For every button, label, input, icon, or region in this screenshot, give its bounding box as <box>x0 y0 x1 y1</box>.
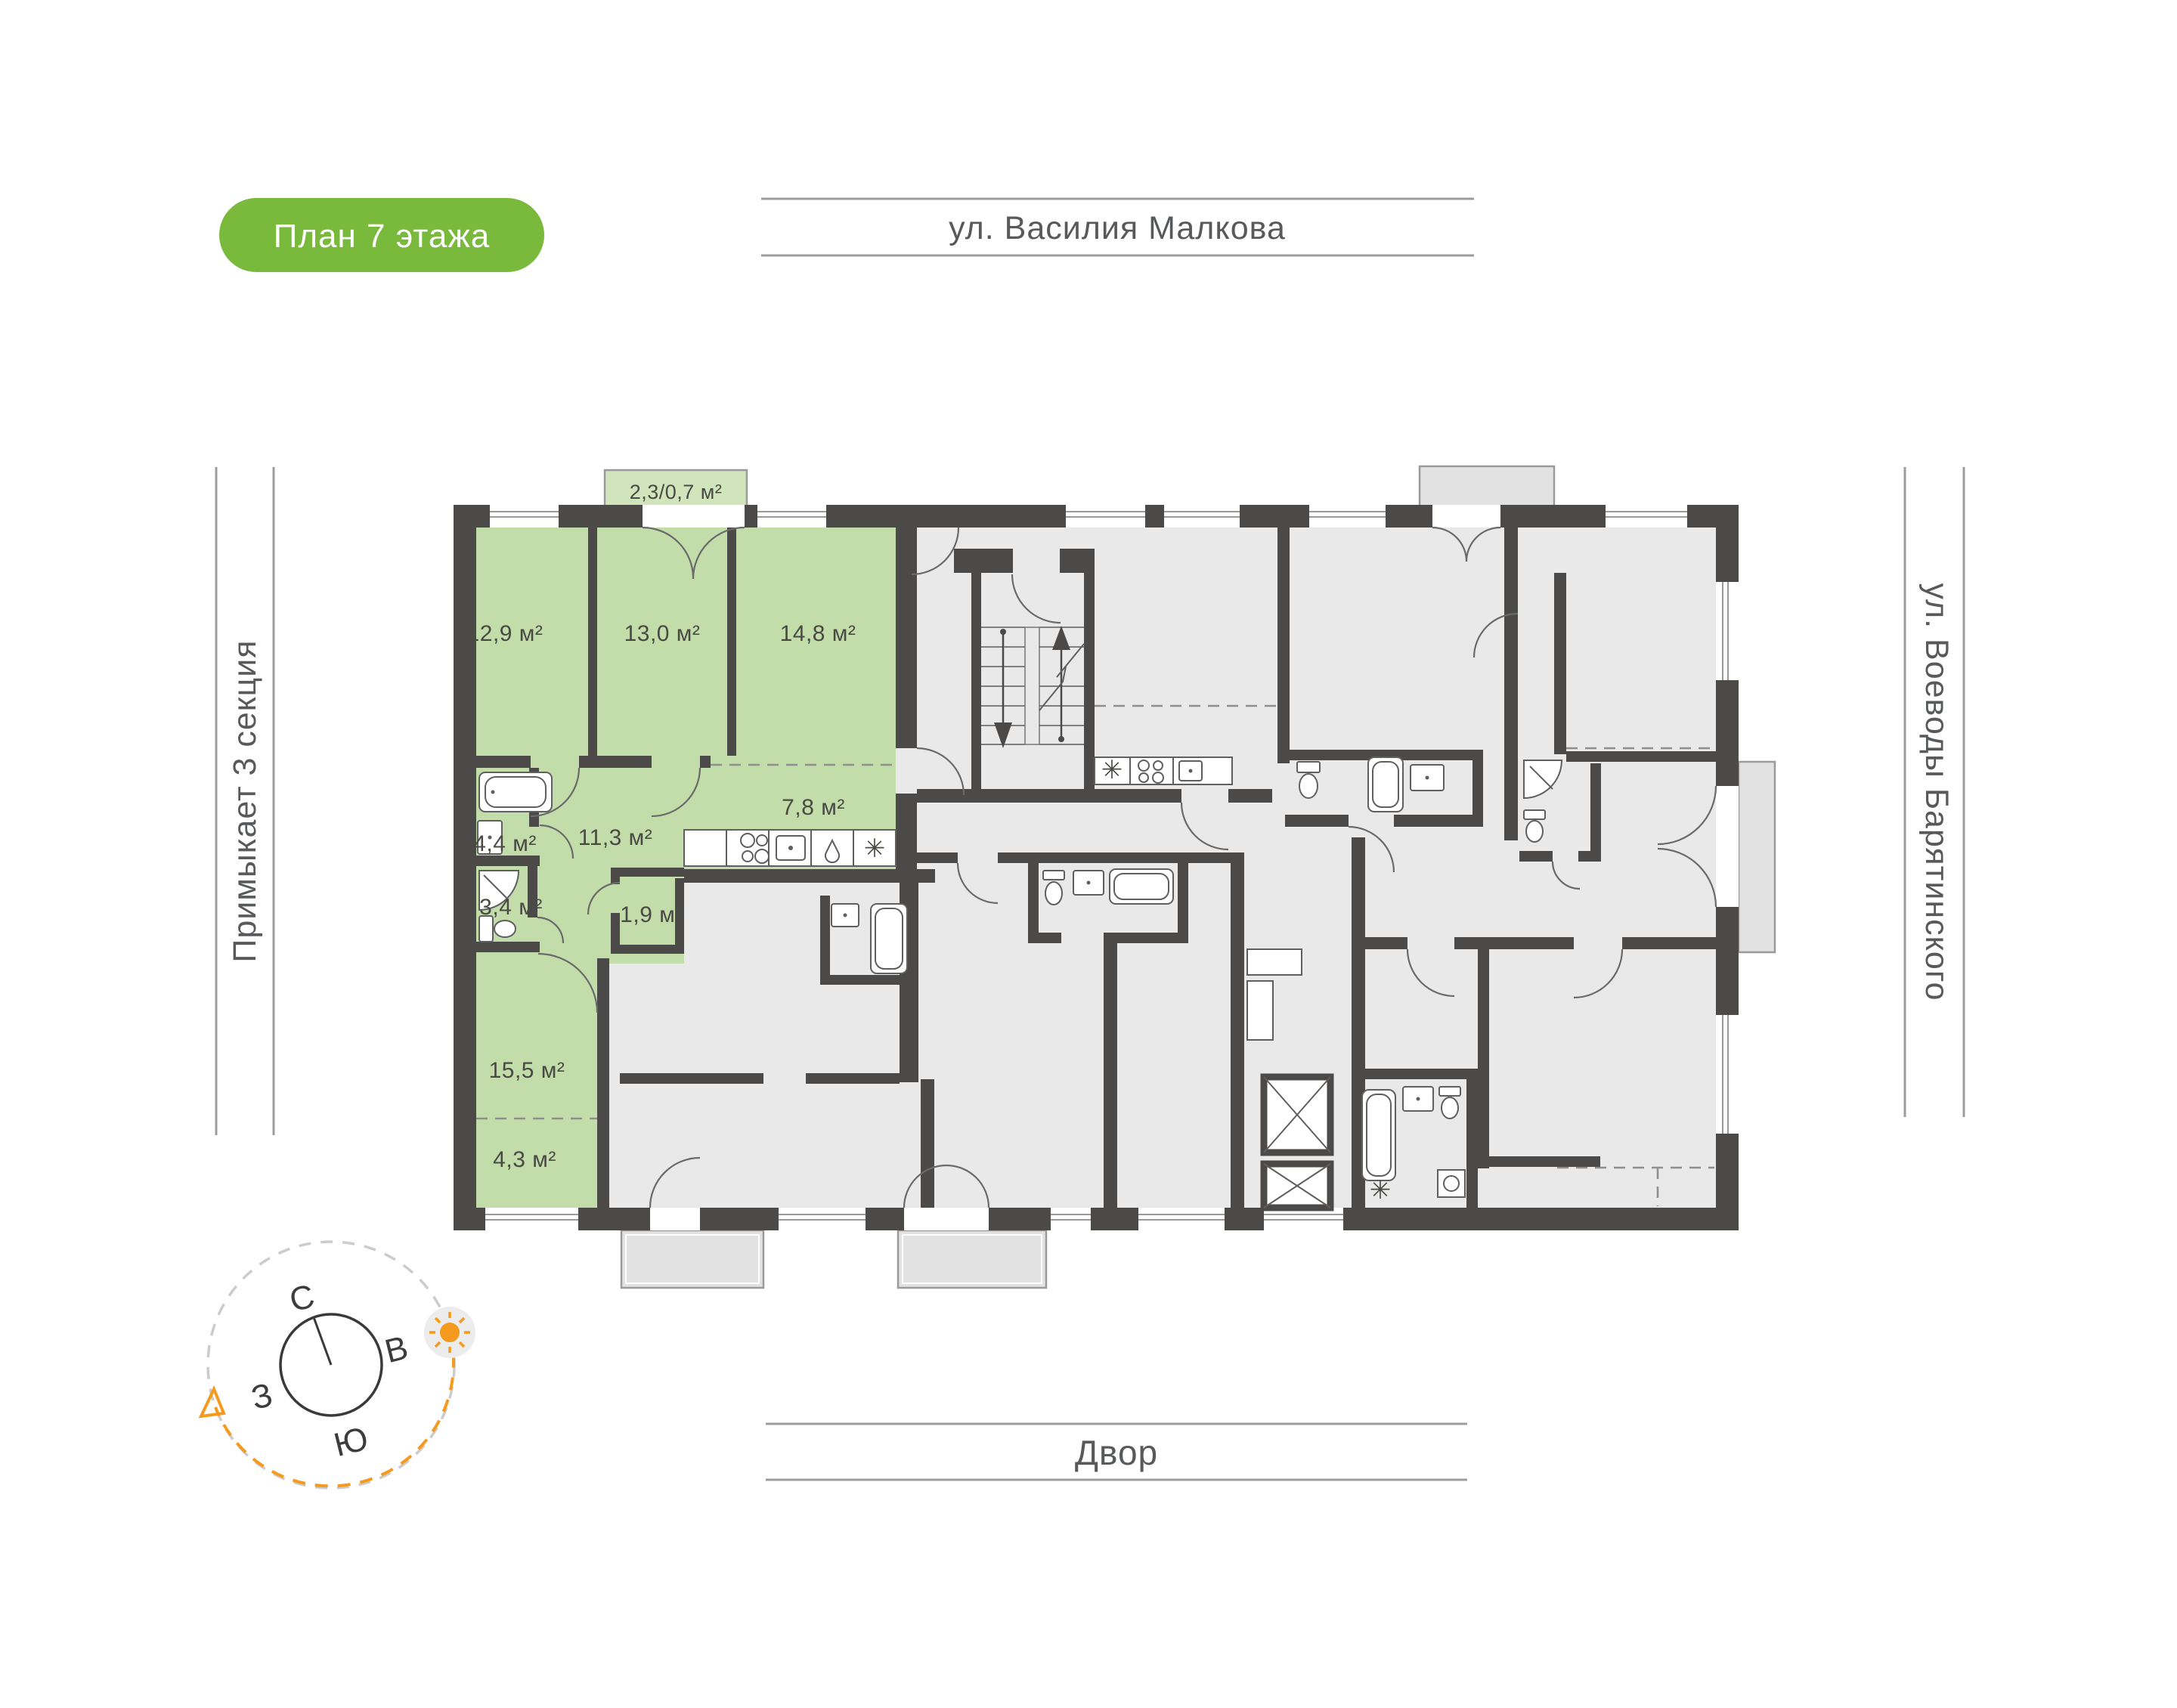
plan-badge-label: План 7 этажа <box>274 218 491 255</box>
balcony-top-right <box>1420 466 1554 508</box>
balcony-door-opening-top-right <box>1432 505 1500 528</box>
elevator-shaft-1 <box>1264 1077 1330 1153</box>
building: ✳ ✳ <box>454 466 1775 1288</box>
window-bottom-4 <box>1138 1208 1225 1230</box>
room-area-label: 1,9 м² <box>620 902 683 927</box>
room-area-label: 13,0 м² <box>624 621 701 646</box>
street-right-label: ул. Воеводы Барятинского <box>1918 583 1955 1001</box>
toilet-icon <box>1439 1087 1460 1119</box>
window-top-3 <box>1066 505 1145 528</box>
stairs-divider <box>1025 627 1039 744</box>
room-area-label: 14,8 м² <box>780 621 856 646</box>
toilet-icon <box>1043 871 1064 905</box>
sun-icon <box>424 1307 475 1358</box>
bathtub-icon <box>1110 869 1173 904</box>
street-left-label: Примыкает 3 секция <box>227 639 263 962</box>
bathtub-icon <box>871 904 907 973</box>
kitchen-counter-apt-a: ✳ <box>1095 756 1232 784</box>
window-right-1 <box>1716 582 1739 680</box>
balcony-door-opening-right <box>1716 786 1739 907</box>
sink-icon <box>776 836 805 860</box>
window-top-4 <box>1164 505 1240 528</box>
elevator-shaft-2 <box>1264 1164 1330 1208</box>
window-top-5 <box>1309 505 1386 528</box>
balcony-door-opening-bottom-2 <box>904 1208 989 1230</box>
compass-arrowhead <box>201 1389 224 1416</box>
window-bottom-2 <box>779 1208 866 1230</box>
compass-east-label: В <box>381 1329 411 1371</box>
sink-icon <box>1073 871 1104 895</box>
sink-icon <box>1403 1087 1433 1111</box>
sink-icon <box>831 904 859 927</box>
snowflake-icon: ✳ <box>864 834 886 863</box>
window-top-1 <box>490 505 559 528</box>
compass: С В З Ю <box>201 1242 475 1488</box>
sink-icon <box>1179 761 1202 781</box>
kitchen-counter-green: ✳ <box>684 830 896 866</box>
compass-south-label: Ю <box>330 1420 372 1464</box>
washer-icon <box>1438 1170 1465 1197</box>
room-area-label: 15,5 м² <box>489 1058 565 1083</box>
balcony-door-opening-bottom-1 <box>650 1208 700 1230</box>
compass-west-label: З <box>248 1376 277 1417</box>
window-bottom-3 <box>1051 1208 1091 1230</box>
balcony-right <box>1739 762 1775 952</box>
balcony-bottom-1 <box>621 1230 763 1288</box>
riser-shaft-2 <box>1247 981 1273 1040</box>
compass-north-label: С <box>286 1277 318 1319</box>
room-area-label: 4,4 м² <box>473 831 537 856</box>
sink-icon <box>1411 765 1444 791</box>
balcony-door-opening-green <box>643 505 745 528</box>
room-area-label: 7,8 м² <box>782 795 845 820</box>
bathtub-icon <box>479 772 552 812</box>
street-right: ул. Воеводы Барятинского <box>1905 467 1964 1117</box>
street-left: Примыкает 3 секция <box>216 467 274 1135</box>
riser-shaft-1 <box>1247 949 1302 975</box>
toilet-icon <box>1297 762 1320 798</box>
snowflake-icon: ✳ <box>1370 1176 1392 1205</box>
window-top-6 <box>1606 505 1687 528</box>
floor-plan-page: План 7 этажа ул. Василия Малкова Двор Пр… <box>0 0 2177 1708</box>
street-top-label: ул. Василия Малкова <box>949 210 1286 246</box>
window-right-2 <box>1716 1015 1739 1134</box>
street-bottom-label: Двор <box>1075 1433 1158 1472</box>
balcony-bottom-2 <box>898 1230 1046 1288</box>
window-top-2 <box>757 505 826 528</box>
room-area-label: 4,3 м² <box>493 1147 556 1172</box>
bathtub-icon <box>1368 757 1403 812</box>
bathtub-icon <box>1362 1090 1395 1180</box>
room-area-label: 2,3/0,7 м² <box>630 481 723 503</box>
toilet-icon <box>1524 810 1545 842</box>
street-top: ул. Василия Малкова <box>761 199 1474 255</box>
window-bottom-1 <box>485 1208 578 1230</box>
room-area-label: 12,9 м² <box>467 621 543 646</box>
room-area-label: 11,3 м² <box>578 825 653 850</box>
snowflake-icon: ✳ <box>1101 756 1123 784</box>
room-area-label: 3,4 м² <box>479 895 543 920</box>
street-bottom: Двор <box>766 1424 1467 1480</box>
plan-badge: План 7 этажа <box>219 198 544 272</box>
